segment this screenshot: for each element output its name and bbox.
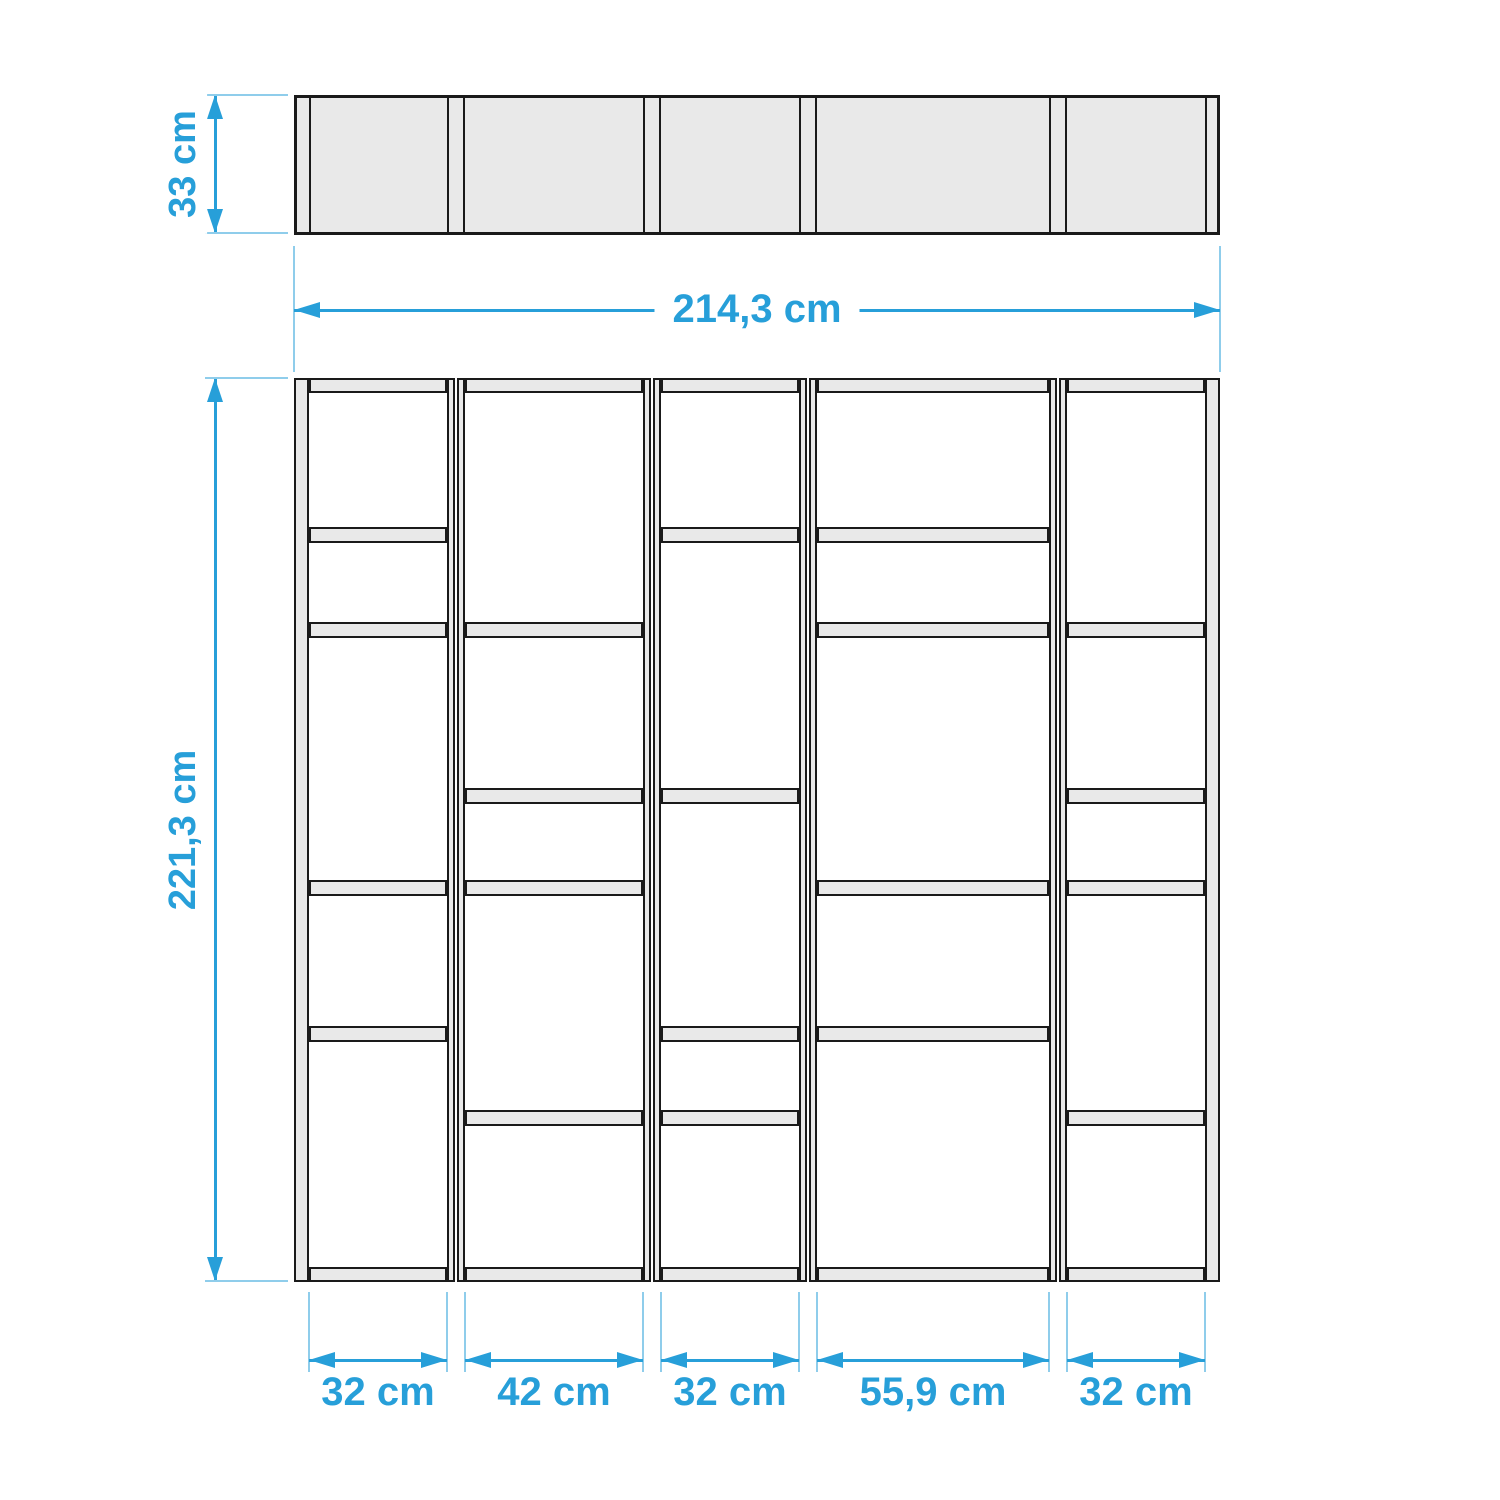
- front-divider-post: [457, 378, 465, 1282]
- plan-divider-line: [643, 98, 645, 232]
- front-divider-post: [809, 378, 817, 1282]
- arrowhead-right-icon: [1023, 1352, 1049, 1368]
- front-bottom-beam: [1067, 1267, 1205, 1282]
- front-shelf: [1067, 788, 1205, 804]
- front-divider-post: [643, 378, 651, 1282]
- front-bottom-beam: [465, 1267, 643, 1282]
- plan-divider-line: [799, 98, 801, 232]
- plan-divider-line: [659, 98, 661, 232]
- front-shelf: [817, 622, 1049, 638]
- dim-col-label: 32 cm: [673, 1370, 786, 1414]
- arrowhead-left-icon: [661, 1352, 687, 1368]
- front-shelf: [309, 1026, 447, 1042]
- plan-divider-line: [463, 98, 465, 232]
- arrowhead-right-icon: [1179, 1352, 1205, 1368]
- front-top-beam: [661, 378, 799, 393]
- arrowhead-right-icon: [1194, 302, 1220, 318]
- arrowhead-left-icon: [294, 302, 320, 318]
- arrowhead-left-icon: [817, 1352, 843, 1368]
- plan-divider-line: [447, 98, 449, 232]
- front-wall-post: [294, 378, 309, 1282]
- arrowhead-right-icon: [773, 1352, 799, 1368]
- plan-divider-line: [1065, 98, 1067, 232]
- dim-height-label: 221,3 cm: [161, 734, 207, 927]
- dim-col-label: 32 cm: [321, 1370, 434, 1414]
- front-wall-post: [1205, 378, 1220, 1282]
- arrowhead-left-icon: [465, 1352, 491, 1368]
- front-bottom-beam: [661, 1267, 799, 1282]
- front-bottom-beam: [309, 1267, 447, 1282]
- front-shelf: [309, 527, 447, 543]
- front-shelf: [309, 622, 447, 638]
- dim-depth-label: 33 cm: [161, 94, 207, 234]
- front-shelf: [817, 1026, 1049, 1042]
- arrowhead-up-icon: [207, 378, 223, 402]
- arrowhead-right-icon: [421, 1352, 447, 1368]
- front-divider-post: [447, 378, 455, 1282]
- front-shelf: [1067, 622, 1205, 638]
- bookshelf-dimension-diagram: 33 cm221,3 cm214,3 cm32 cm42 cm32 cm55,9…: [0, 0, 1500, 1500]
- front-shelf: [661, 788, 799, 804]
- dim-height-ext-top: [205, 377, 288, 379]
- front-shelf: [1067, 1110, 1205, 1126]
- front-top-beam: [1067, 378, 1205, 393]
- dim-depth-ext-bottom: [205, 232, 288, 234]
- front-shelf: [309, 880, 447, 896]
- front-divider-post: [799, 378, 807, 1282]
- front-divider-post: [1059, 378, 1067, 1282]
- plan-side-panel-line: [309, 98, 311, 232]
- front-top-beam: [309, 378, 447, 393]
- plan-view-body: [294, 95, 1220, 235]
- front-shelf: [817, 880, 1049, 896]
- dim-height-ext-bottom: [205, 1280, 288, 1282]
- front-shelf: [817, 527, 1049, 543]
- front-divider-post: [1049, 378, 1057, 1282]
- dim-col-label: 55,9 cm: [860, 1370, 1007, 1414]
- front-shelf: [661, 1110, 799, 1126]
- front-bottom-beam: [817, 1267, 1049, 1282]
- arrowhead-left-icon: [1067, 1352, 1093, 1368]
- front-shelf: [465, 788, 643, 804]
- arrowhead-left-icon: [309, 1352, 335, 1368]
- arrowhead-up-icon: [207, 95, 223, 119]
- dim-height-line: [214, 378, 217, 1281]
- front-shelf: [465, 1110, 643, 1126]
- front-shelf: [661, 527, 799, 543]
- front-shelf: [1067, 880, 1205, 896]
- dim-col-label: 32 cm: [1079, 1370, 1192, 1414]
- plan-divider-line: [1049, 98, 1051, 232]
- arrowhead-down-icon: [207, 209, 223, 233]
- front-top-beam: [465, 378, 643, 393]
- dim-col-label: 42 cm: [497, 1370, 610, 1414]
- front-shelf: [465, 622, 643, 638]
- arrowhead-down-icon: [207, 1257, 223, 1281]
- front-top-beam: [817, 378, 1049, 393]
- dim-depth-ext-top: [205, 94, 288, 96]
- front-divider-post: [653, 378, 661, 1282]
- front-shelf: [465, 880, 643, 896]
- dim-col-line: [817, 1359, 1049, 1362]
- front-shelf: [661, 1026, 799, 1042]
- plan-side-panel-line: [1205, 98, 1207, 232]
- arrowhead-right-icon: [617, 1352, 643, 1368]
- plan-divider-line: [815, 98, 817, 232]
- dim-width-label: 214,3 cm: [654, 285, 859, 333]
